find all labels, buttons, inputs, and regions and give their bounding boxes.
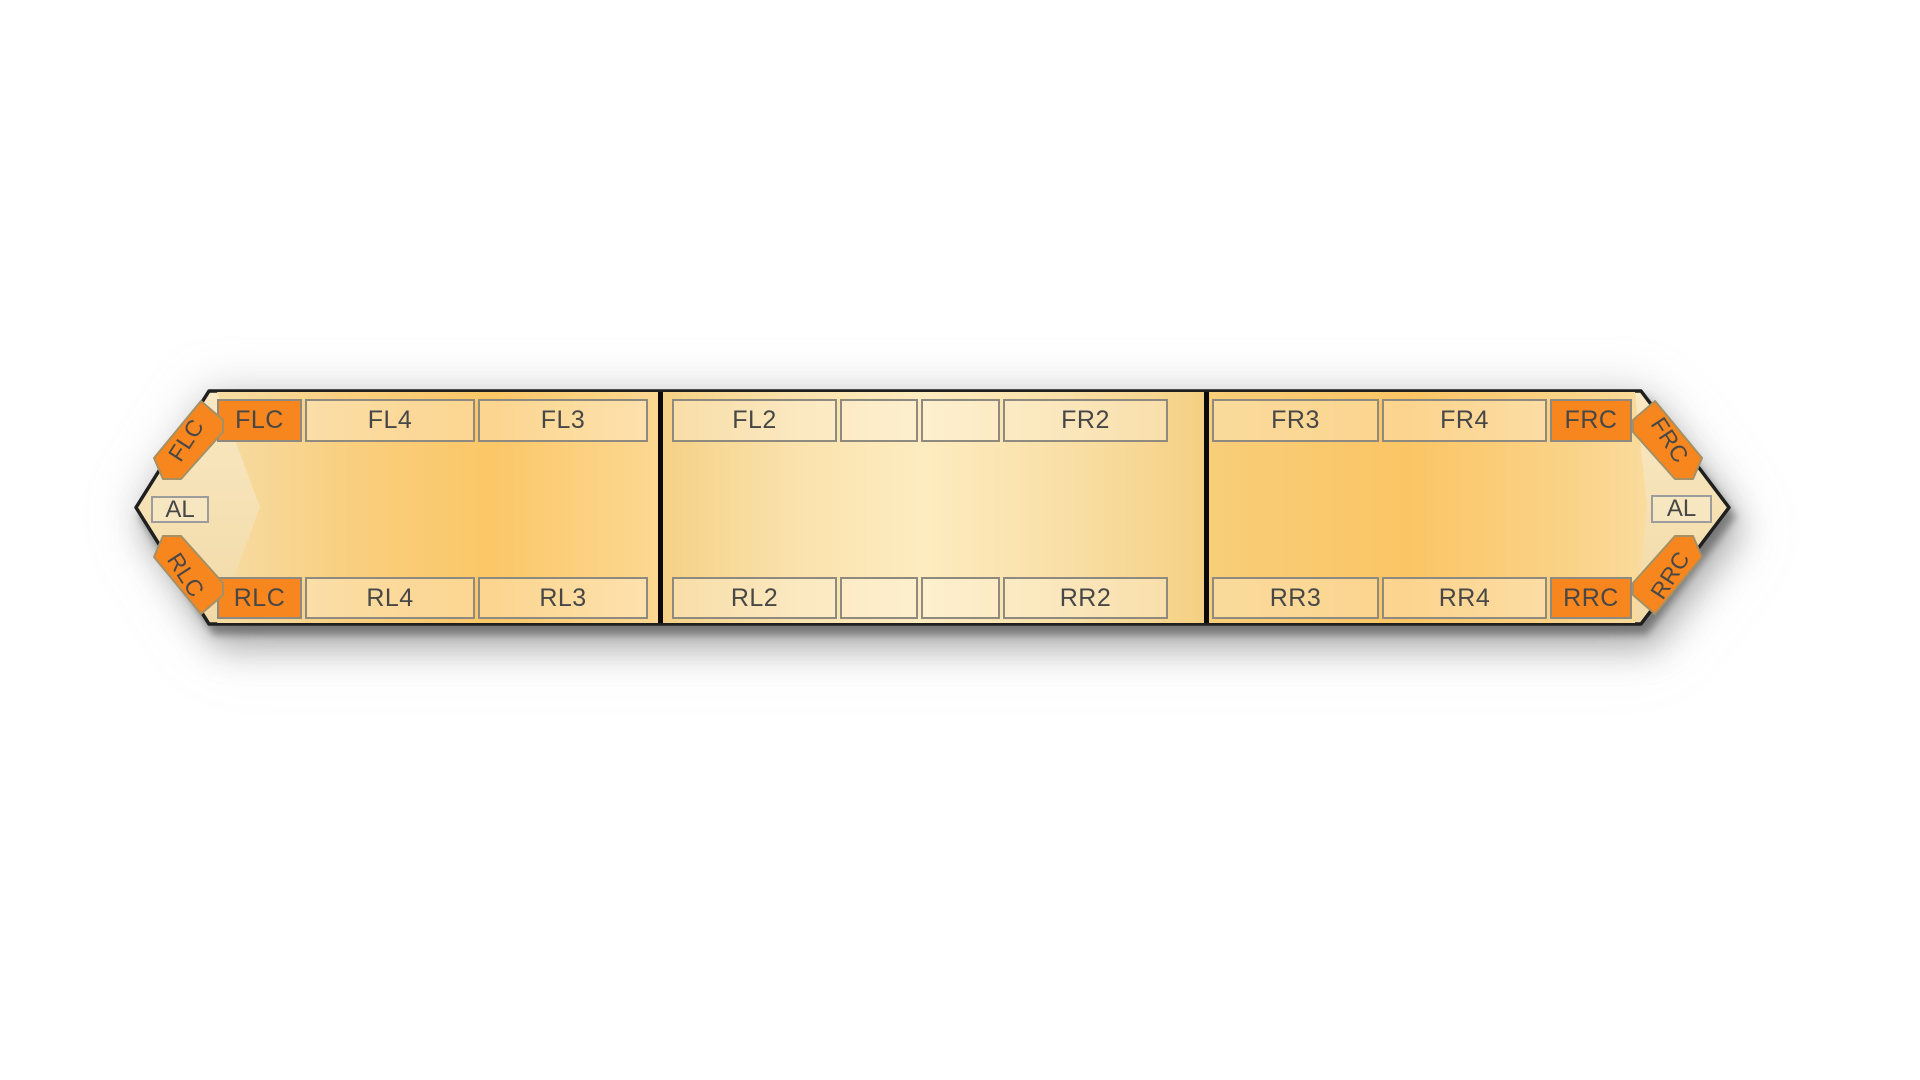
alley-light-left[interactable]: AL [151, 496, 209, 523]
slot-fl4[interactable]: FL4 [305, 399, 475, 442]
slot-rl3[interactable]: RL3 [478, 577, 648, 619]
slot-rr4[interactable]: RR4 [1382, 577, 1547, 619]
slot-fr4[interactable]: FR4 [1382, 399, 1547, 442]
alley-light-right[interactable]: AL [1651, 495, 1712, 523]
slot-rlc-bottom[interactable]: RLC [217, 577, 302, 619]
slot-top-empty-1[interactable] [840, 399, 918, 442]
slot-fr3[interactable]: FR3 [1212, 399, 1379, 442]
corner-module-rlc[interactable]: RLC [153, 535, 225, 615]
lightbar-diagram: FLC FL4 FL3 FL2 FR2 FR3 FR4 FRC RLC RL4 … [133, 387, 1732, 628]
slot-rr3[interactable]: RR3 [1212, 577, 1379, 619]
section-divider-right [1204, 390, 1209, 625]
slot-rl2[interactable]: RL2 [672, 577, 837, 619]
slot-fl2[interactable]: FL2 [672, 399, 837, 442]
slot-rrc-bottom[interactable]: RRC [1550, 577, 1632, 619]
corner-module-frc[interactable]: FRC [1631, 400, 1703, 480]
diagram-canvas: FLC FL4 FL3 FL2 FR2 FR3 FR4 FRC RLC RL4 … [0, 0, 1920, 1080]
corner-module-rrc[interactable]: RRC [1631, 535, 1703, 615]
slot-flc-top[interactable]: FLC [217, 399, 302, 442]
slot-frc-top[interactable]: FRC [1550, 399, 1632, 442]
slot-rr2[interactable]: RR2 [1003, 577, 1168, 619]
section-divider-left [658, 390, 663, 625]
corner-module-flc[interactable]: FLC [153, 400, 225, 480]
slot-fl3[interactable]: FL3 [478, 399, 648, 442]
slot-bottom-empty-2[interactable] [921, 577, 1000, 619]
slot-top-empty-2[interactable] [921, 399, 1000, 442]
slot-rl4[interactable]: RL4 [305, 577, 475, 619]
slot-fr2[interactable]: FR2 [1003, 399, 1168, 442]
slot-bottom-empty-1[interactable] [840, 577, 918, 619]
